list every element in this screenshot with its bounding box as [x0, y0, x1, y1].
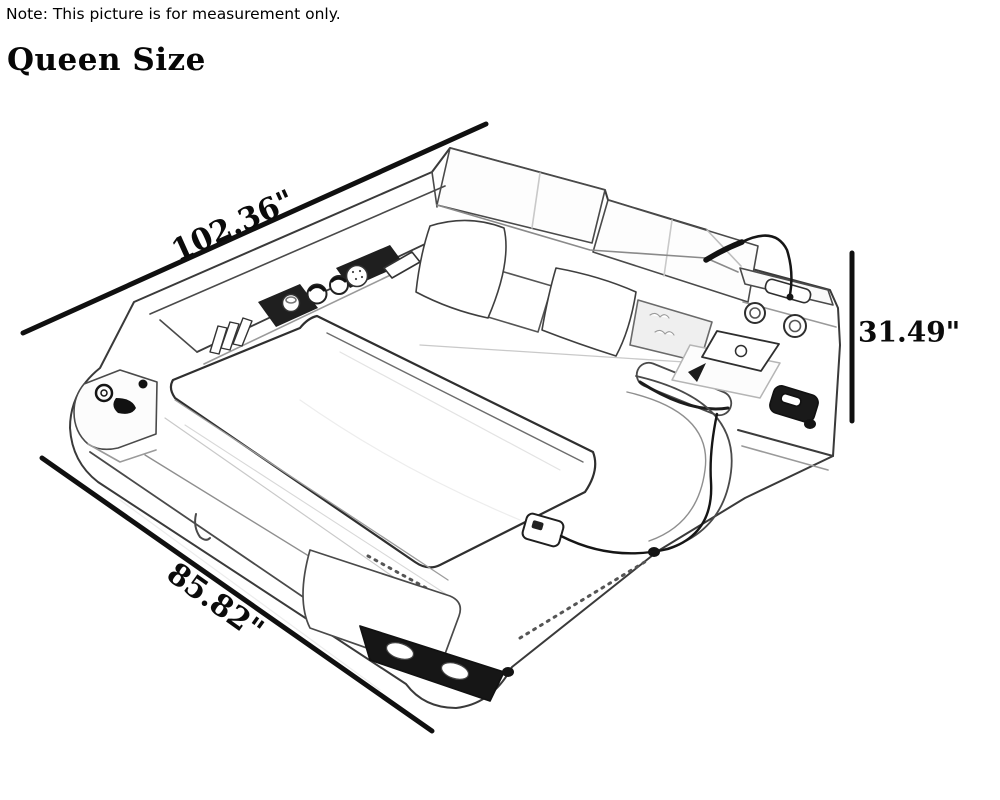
shelf-golf-ball-icon: [347, 266, 368, 287]
bed-illustration-scene: 102.36" 31.49" 85.82": [0, 0, 1000, 800]
bed-foot: [804, 419, 816, 429]
shelf-mug-icon: [283, 295, 300, 312]
bed-line-drawing: [0, 0, 1000, 800]
dimension-label-height: 31.49": [858, 316, 960, 349]
measurement-diagram-page: Note: This picture is for measurement on…: [0, 0, 1000, 800]
bed-foot: [502, 667, 514, 677]
